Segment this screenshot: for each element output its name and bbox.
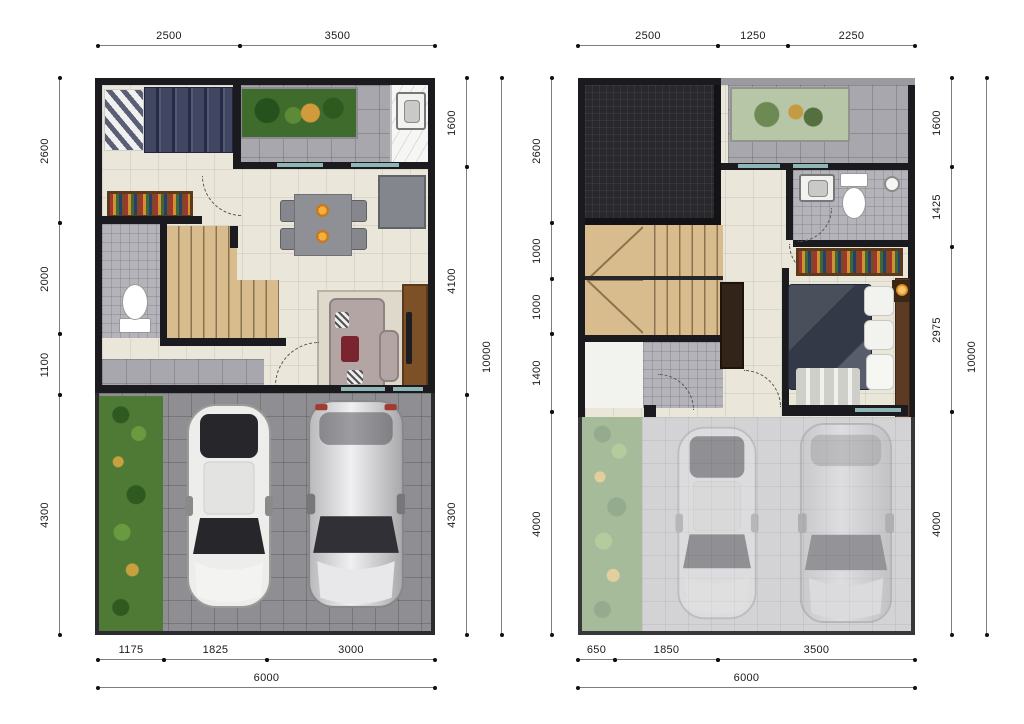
dim-left-right-0: 1600 bbox=[451, 78, 467, 167]
dim-label: 2600 bbox=[531, 135, 543, 167]
kitchen-sink bbox=[396, 92, 426, 130]
sofa-cushion-red bbox=[341, 336, 359, 362]
dim-label: 10000 bbox=[481, 337, 493, 375]
dim-left-left-0: 2600 bbox=[44, 78, 60, 223]
roof-void bbox=[585, 85, 721, 225]
dim-left-right-2: 4300 bbox=[451, 395, 467, 635]
dim-left-right-total: 10000 bbox=[486, 78, 502, 635]
dim-right-right-1: 1425 bbox=[936, 167, 952, 247]
ghost-garden-strip bbox=[582, 417, 642, 631]
bed-duvet bbox=[144, 87, 233, 153]
stair-mid-rail bbox=[585, 276, 723, 280]
bed-pillow bbox=[866, 354, 894, 390]
dim-right-top-2: 2250 bbox=[788, 32, 915, 46]
dim-label: 1100 bbox=[39, 349, 51, 380]
wall-bedroom-terrace bbox=[233, 85, 241, 169]
dim-right-right-0: 1600 bbox=[936, 78, 952, 167]
ground-floor-plan bbox=[95, 78, 435, 635]
wall-bedroom-bottom bbox=[102, 216, 202, 224]
dim-label: 2500 bbox=[156, 31, 182, 42]
dim-label: 2975 bbox=[931, 314, 943, 346]
dim-left-left-3: 4300 bbox=[44, 395, 60, 635]
car-white-sedan bbox=[185, 400, 273, 612]
dim-left-bottom-0: 1175 bbox=[98, 646, 164, 660]
dim-left-top-1: 3500 bbox=[240, 32, 435, 46]
dim-right-right-2: 2975 bbox=[936, 247, 952, 412]
dim-right-left-0: 2600 bbox=[536, 78, 552, 223]
window-bedroom-bottom bbox=[855, 408, 901, 412]
toilet-tank bbox=[119, 318, 151, 333]
window-living-bottom-2 bbox=[393, 387, 423, 391]
dim-label: 2600 bbox=[39, 135, 51, 167]
window-dining bbox=[277, 163, 323, 167]
ghost-car-suv bbox=[798, 421, 894, 625]
cabinet-grey bbox=[378, 175, 426, 229]
dim-right-left-3: 1400 bbox=[536, 334, 552, 412]
bed-pillows bbox=[104, 89, 144, 151]
dim-left-bottom-2: 3000 bbox=[267, 646, 435, 660]
dim-label: 2000 bbox=[39, 263, 51, 295]
sofa-cushion bbox=[335, 312, 349, 328]
bed-upper-floor bbox=[788, 282, 896, 414]
staircase-upper-floor bbox=[585, 225, 723, 335]
shower-head bbox=[884, 176, 900, 192]
dining-plate bbox=[316, 230, 329, 243]
window-balcony bbox=[738, 164, 780, 168]
stair-treads bbox=[643, 225, 723, 335]
window-living-bottom bbox=[341, 387, 385, 391]
bed-blanket bbox=[796, 368, 860, 410]
dim-left-left-1: 2000 bbox=[44, 223, 60, 334]
dim-left-bottom-1: 1825 bbox=[164, 646, 267, 660]
dim-right-bottom-0: 650 bbox=[578, 646, 615, 660]
stair-landing-lines bbox=[585, 225, 643, 335]
car-silver-suv bbox=[307, 398, 405, 610]
window-dining-2 bbox=[351, 163, 399, 167]
dim-label: 1000 bbox=[531, 291, 543, 323]
ghost-carport bbox=[578, 417, 915, 635]
sofa-chaise bbox=[379, 330, 399, 382]
dim-label: 1400 bbox=[531, 357, 543, 389]
table-lamp bbox=[896, 284, 908, 296]
parapet-grey bbox=[721, 78, 915, 85]
toilet-bowl-upper bbox=[842, 187, 866, 219]
dim-label: 2250 bbox=[839, 31, 865, 42]
wall-stairs-bottom-upper bbox=[585, 335, 723, 342]
staircase-lower-flight bbox=[167, 280, 279, 338]
dim-label: 1600 bbox=[446, 107, 458, 139]
dining-plate bbox=[316, 204, 329, 217]
porch-floor bbox=[102, 359, 264, 387]
ghost-car-sedan bbox=[674, 423, 760, 623]
dim-label: 6000 bbox=[254, 673, 280, 684]
wall-stairs-bottom bbox=[160, 338, 286, 346]
dim-label: 1825 bbox=[203, 645, 229, 656]
floorplan-sheet: 2500 3500 1175 1825 3000 6000 2600 2000 … bbox=[0, 0, 1024, 724]
bathroom-sink bbox=[799, 174, 835, 202]
dim-right-bottom-1: 1850 bbox=[615, 646, 718, 660]
dim-right-bottom-total: 6000 bbox=[578, 674, 915, 688]
wall-bath-left bbox=[786, 170, 793, 240]
dim-label: 4300 bbox=[39, 499, 51, 531]
bed-pillow bbox=[864, 320, 894, 350]
sofa-cushion bbox=[347, 370, 363, 384]
staircase-upper-flight bbox=[167, 226, 237, 280]
dining-set bbox=[280, 188, 365, 258]
dim-right-left-4: 4000 bbox=[536, 412, 552, 635]
dim-right-top-1: 1250 bbox=[718, 32, 788, 46]
dim-label: 2500 bbox=[635, 31, 661, 42]
bookshelf-upper-floor bbox=[796, 248, 903, 276]
dim-label: 4000 bbox=[931, 508, 943, 540]
bookshelf-ground-floor bbox=[107, 191, 193, 218]
dim-label: 4100 bbox=[446, 265, 458, 297]
toilet-bowl bbox=[122, 284, 148, 320]
bed-ground-floor bbox=[102, 87, 233, 153]
balcony-planter bbox=[730, 87, 850, 142]
dim-right-top-0: 2500 bbox=[578, 32, 718, 46]
dim-label: 4300 bbox=[446, 499, 458, 531]
understair-floor bbox=[585, 342, 643, 408]
dim-label: 3000 bbox=[338, 645, 364, 656]
dim-label: 3500 bbox=[804, 645, 830, 656]
dim-label: 1600 bbox=[931, 107, 943, 139]
dim-label: 6000 bbox=[734, 673, 760, 684]
dim-left-top-0: 2500 bbox=[98, 32, 240, 46]
dim-label: 1175 bbox=[119, 645, 144, 656]
dim-label: 4000 bbox=[531, 508, 543, 540]
dim-left-left-2: 1100 bbox=[44, 334, 60, 395]
wardrobe-dark bbox=[720, 282, 744, 369]
upper-floor-plan bbox=[578, 78, 915, 635]
dim-label: 1850 bbox=[654, 645, 680, 656]
dim-right-right-3: 4000 bbox=[936, 412, 952, 635]
dim-right-right-total: 10000 bbox=[971, 78, 987, 635]
dim-right-left-2: 1000 bbox=[536, 279, 552, 334]
bed-pillow bbox=[864, 286, 894, 316]
dim-left-bottom-total: 6000 bbox=[98, 674, 435, 688]
garden-planter bbox=[240, 87, 358, 139]
garden-strip bbox=[99, 396, 163, 631]
tv-screen bbox=[406, 312, 412, 364]
dim-label: 1000 bbox=[531, 235, 543, 267]
dim-label: 1425 bbox=[931, 191, 943, 223]
wall-stairs-left bbox=[160, 280, 167, 342]
toilet-tank-upper bbox=[840, 173, 868, 187]
dim-right-left-1: 1000 bbox=[536, 223, 552, 279]
window-balcony-2 bbox=[793, 164, 828, 168]
dim-left-right-1: 4100 bbox=[451, 167, 467, 395]
dim-label: 10000 bbox=[966, 337, 978, 375]
dim-label: 3500 bbox=[325, 31, 351, 42]
dim-right-bottom-2: 3500 bbox=[718, 646, 915, 660]
wall-stair-nub bbox=[230, 226, 238, 248]
dim-label: 650 bbox=[587, 645, 606, 656]
dim-label: 1250 bbox=[740, 31, 766, 42]
